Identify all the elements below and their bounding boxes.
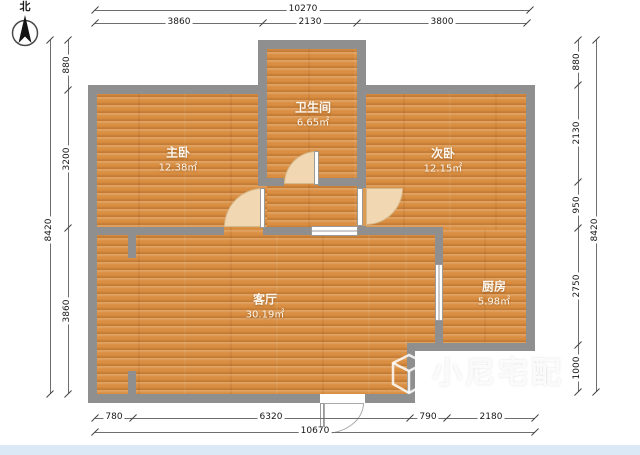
dim-label-left-total: 8420 [45, 217, 55, 244]
room-name: 主卧 [159, 146, 198, 162]
dim-label: 880 [573, 51, 583, 72]
room-label-living: 客厅 30.19㎡ [246, 293, 285, 322]
dimension-line-right-segments [578, 40, 579, 392]
floor-bathroom [262, 44, 361, 234]
wall-secondary-top [361, 85, 535, 94]
room-area: 12.38㎡ [159, 161, 198, 174]
wall-bathroom-right [357, 40, 366, 188]
kitchen-sliding-door [435, 264, 443, 321]
wall-kitchen-left-lower [435, 321, 443, 351]
dim-label-bottom-total: 10670 [299, 427, 332, 437]
compass-icon [8, 12, 42, 48]
room-name: 次卧 [424, 147, 463, 163]
room-area: 5.98㎡ [478, 295, 510, 308]
wall-stub-upper [128, 235, 136, 258]
floor-plan-canvas: 北 主卧 12.38㎡ 卫生 [0, 0, 640, 455]
dim-label: 880 [63, 54, 73, 75]
dim-label-right-total: 8420 [591, 217, 601, 244]
cube-logo-icon [391, 353, 427, 395]
dim-label: 3200 [63, 146, 73, 173]
dimension-line-left-segments [68, 40, 69, 394]
wall-outer-right [526, 85, 535, 351]
dim-label-top-total: 10270 [287, 5, 320, 15]
dim-label: 790 [417, 413, 438, 423]
watermark-text: 小尼宅配 [432, 359, 564, 389]
footer-strip [0, 445, 640, 455]
wall-bathroom-top [258, 40, 365, 49]
wall-bathroom-left [258, 40, 267, 186]
room-name: 厨房 [478, 280, 510, 296]
dim-label: 780 [103, 413, 124, 423]
wall-kitchen-bottom [407, 343, 535, 351]
bathroom-door-leaf [314, 151, 319, 185]
dim-label: 2130 [297, 18, 324, 28]
room-area: 6.65㎡ [295, 116, 331, 129]
room-label-bathroom: 卫生间 6.65㎡ [295, 101, 331, 130]
dim-label: 2130 [573, 120, 583, 147]
dim-label: 6320 [258, 413, 285, 423]
wall-outer-left [88, 85, 97, 403]
dim-label: 1000 [573, 355, 583, 382]
entry-door-opening [320, 394, 365, 403]
master-door-leaf [260, 188, 265, 228]
north-indicator: 北 [7, 1, 43, 52]
room-name: 卫生间 [295, 101, 331, 117]
wall-master-top [88, 85, 258, 94]
wall-stub-lower [128, 371, 136, 394]
room-area: 12.15㎡ [424, 162, 463, 175]
room-label-secondary: 次卧 12.15㎡ [424, 147, 463, 176]
dim-label: 2750 [573, 273, 583, 300]
room-label-kitchen: 厨房 5.98㎡ [478, 280, 510, 309]
pass-window [311, 226, 358, 236]
dim-label: 2180 [478, 413, 505, 423]
wall-middle-2 [263, 227, 311, 235]
watermark: 小尼宅配 [391, 353, 564, 395]
dimension-line-bottom-segments [95, 418, 535, 419]
dim-label: 950 [573, 194, 583, 215]
room-name: 客厅 [246, 293, 285, 309]
dim-label: 3800 [429, 18, 456, 28]
dim-label: 3860 [63, 298, 73, 325]
wall-bathroom-bottom-right [318, 178, 366, 186]
wall-bathroom-bottom-left [258, 178, 284, 186]
room-area: 30.19㎡ [246, 308, 285, 321]
room-label-master: 主卧 12.38㎡ [159, 146, 198, 175]
secondary-door-leaf [357, 188, 363, 226]
wall-middle-3 [357, 227, 443, 235]
wall-middle-1 [88, 227, 224, 235]
wall-kitchen-left-upper [435, 227, 443, 264]
north-label: 北 [7, 1, 43, 12]
dim-label: 3860 [166, 18, 193, 28]
wall-outer-bottom [88, 394, 415, 403]
